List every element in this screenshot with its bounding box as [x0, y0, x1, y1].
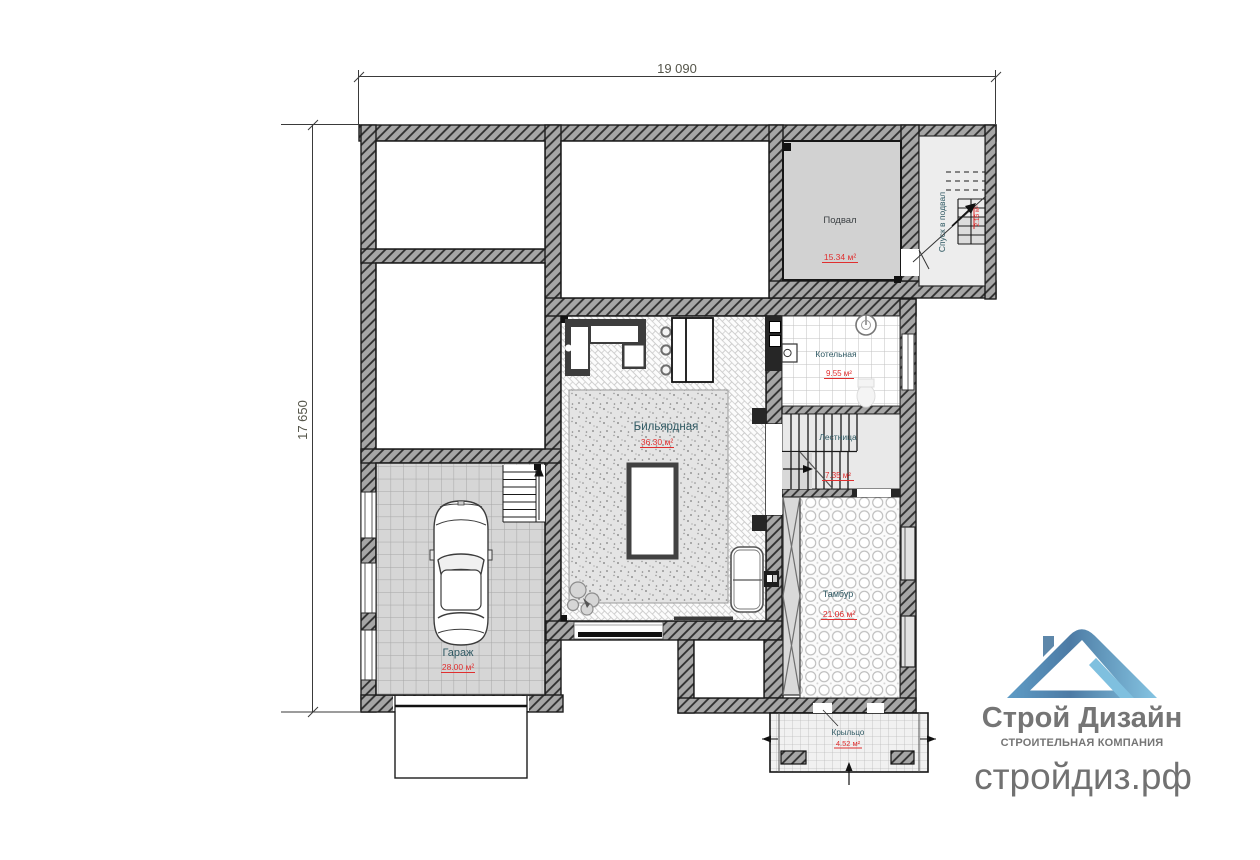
svg-text:Бильярдная: Бильярдная: [634, 421, 699, 433]
svg-text:9.55 м²: 9.55 м²: [826, 369, 852, 378]
svg-text:Котельная: Котельная: [815, 349, 857, 359]
svg-text:19 090: 19 090: [657, 61, 697, 76]
svg-text:21.06 м²: 21.06 м²: [823, 609, 855, 619]
svg-text:Гараж: Гараж: [442, 647, 474, 659]
svg-text:2.16 м²: 2.16 м²: [974, 205, 981, 227]
svg-text:4.52 м²: 4.52 м²: [836, 739, 861, 748]
svg-text:Строй Дизайн: Строй Дизайн: [982, 702, 1182, 734]
svg-text:17 650: 17 650: [295, 400, 310, 440]
svg-text:Крыльцо: Крыльцо: [832, 728, 865, 737]
svg-text:15.34 м²: 15.34 м²: [824, 252, 856, 262]
svg-text:Спуск в подвал: Спуск в подвал: [937, 192, 947, 252]
svg-text:28.00 м²: 28.00 м²: [442, 662, 474, 672]
svg-text:Лестница: Лестница: [819, 432, 857, 442]
svg-text:7.35 м²: 7.35 м²: [825, 471, 851, 480]
svg-text:36.30 м²: 36.30 м²: [641, 437, 673, 447]
svg-text:СТРОИТЕЛЬНАЯ КОМПАНИЯ: СТРОИТЕЛЬНАЯ КОМПАНИЯ: [1001, 737, 1164, 749]
svg-text:стройдиз.рф: стройдиз.рф: [974, 756, 1192, 797]
svg-text:Подвал: Подвал: [823, 215, 856, 226]
svg-text:Тамбур: Тамбур: [823, 589, 854, 599]
